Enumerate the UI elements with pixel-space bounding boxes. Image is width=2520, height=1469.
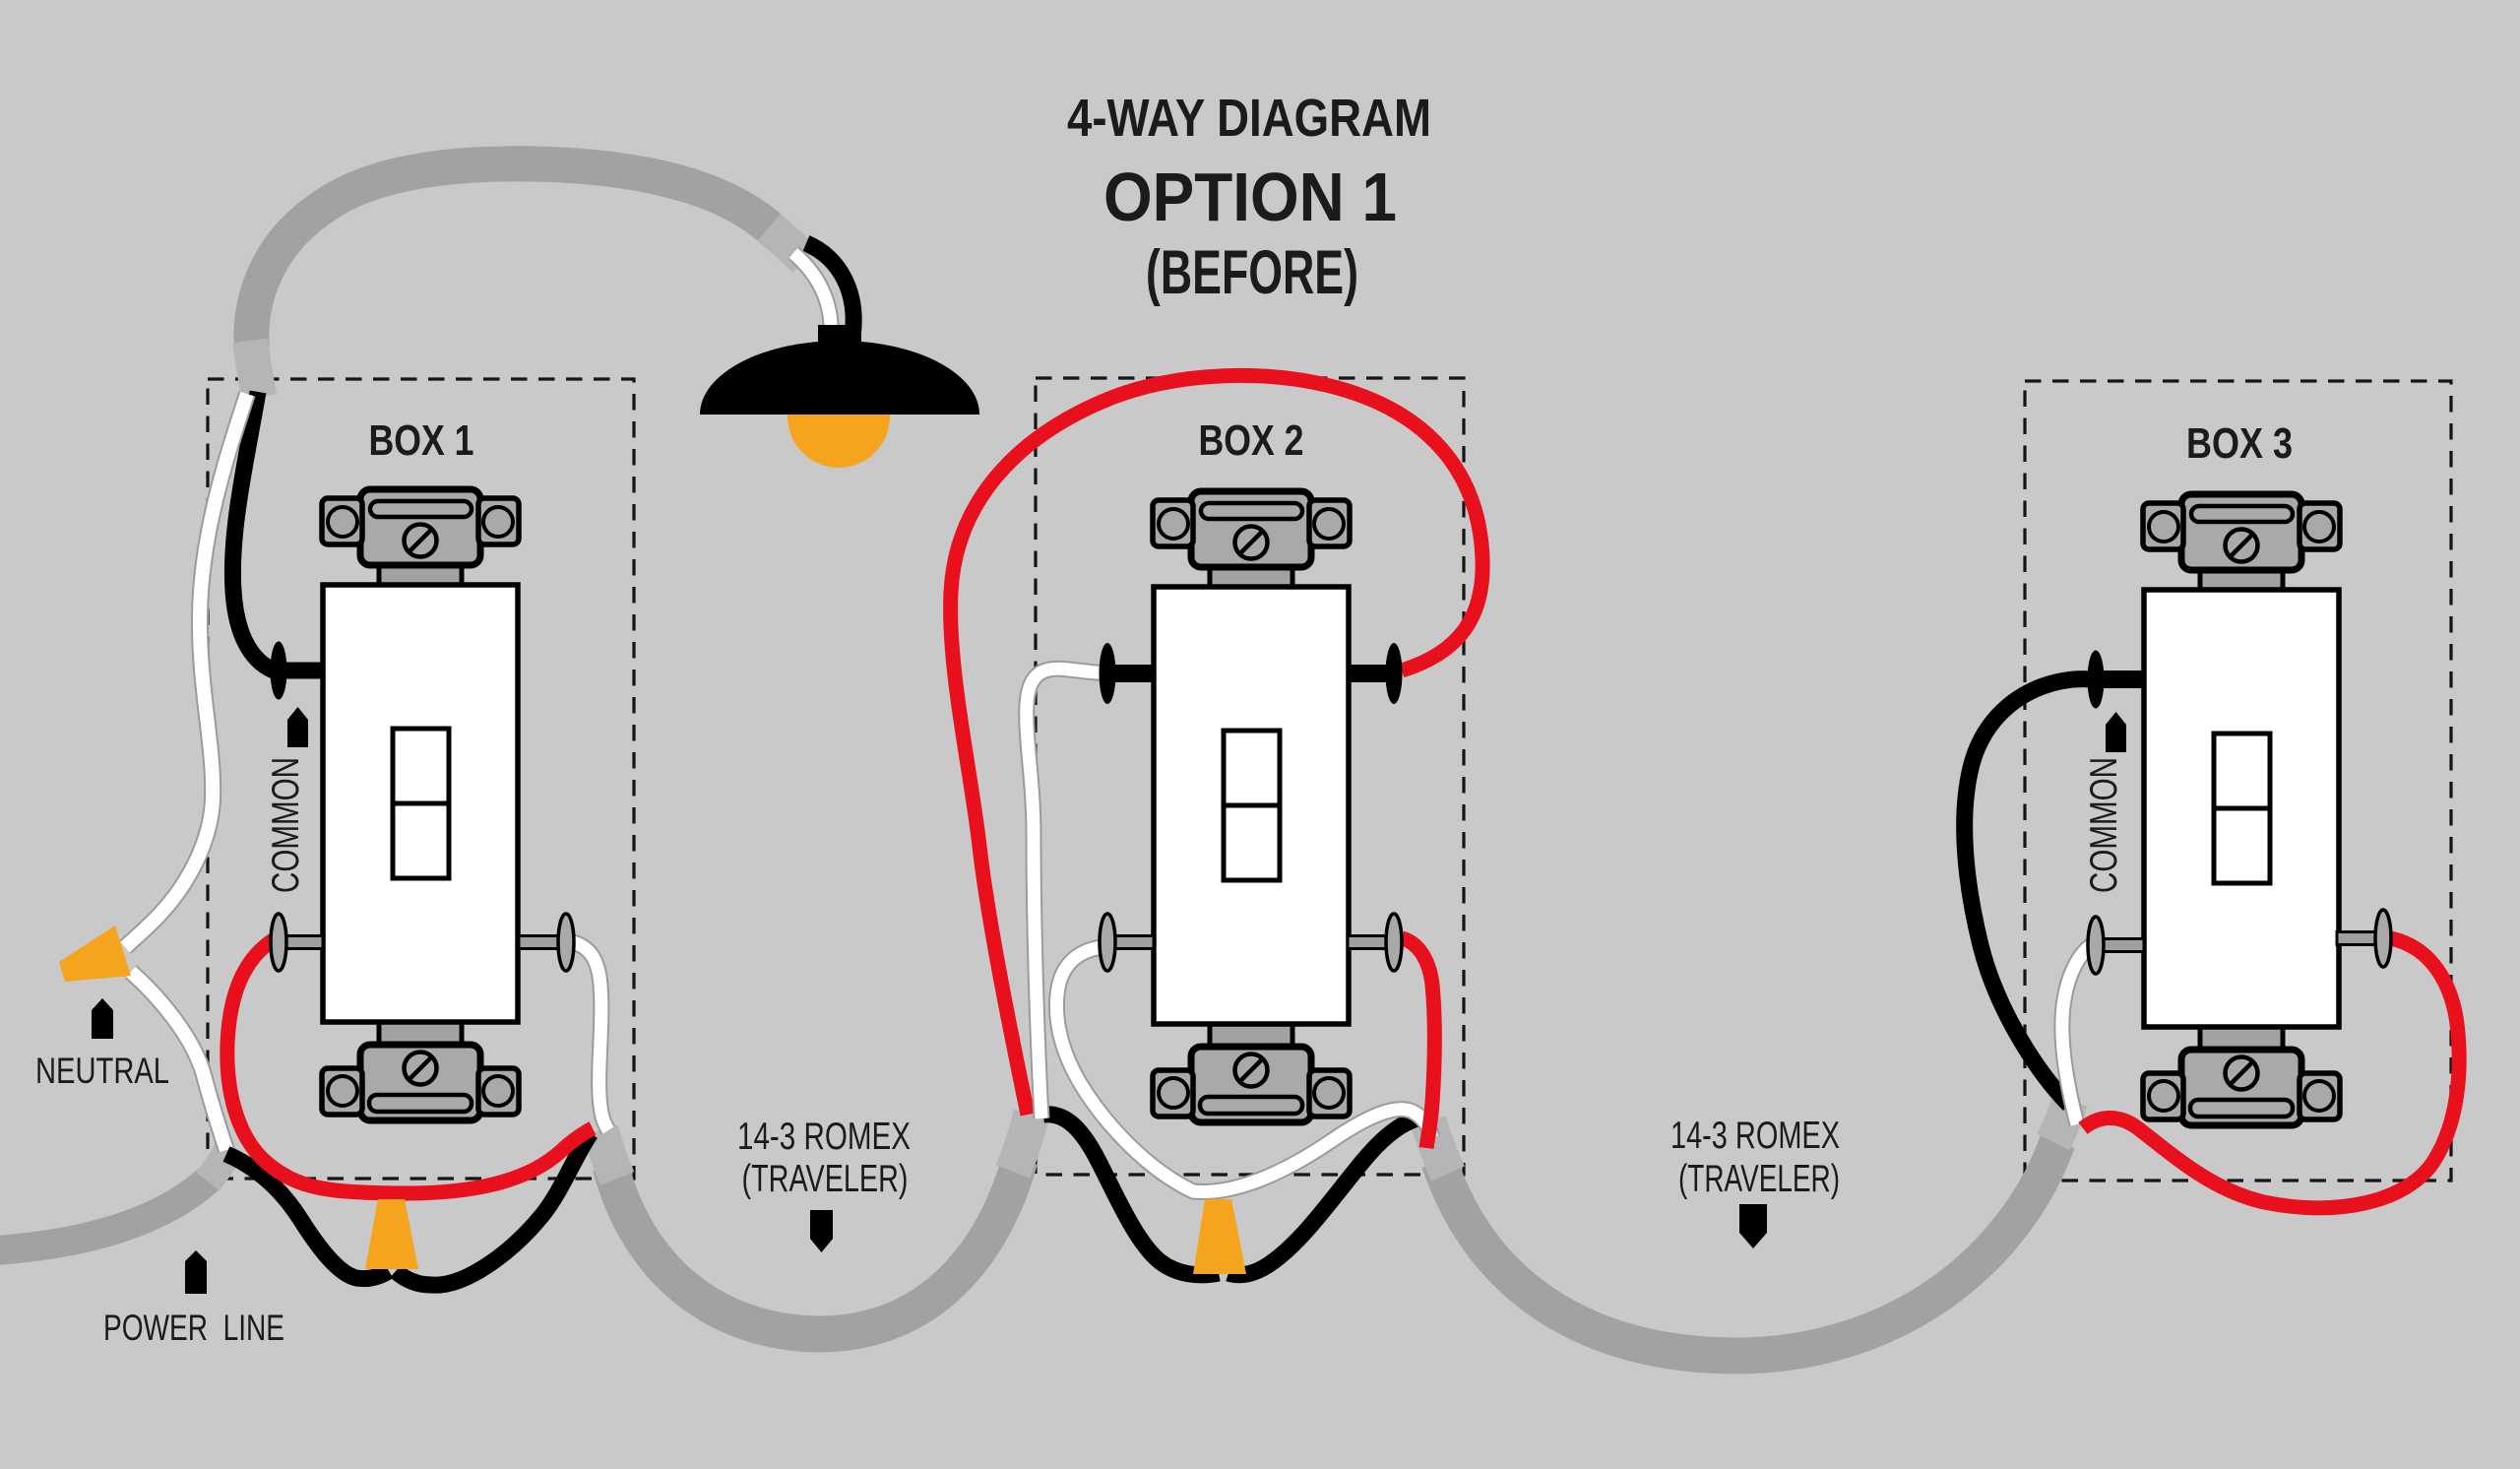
svg-text:(TRAVELER): (TRAVELER) [742,1158,909,1200]
svg-text:4-WAY DIAGRAM: 4-WAY DIAGRAM [1067,89,1431,148]
svg-text:14-3 ROMEX: 14-3 ROMEX [1670,1115,1840,1157]
svg-text:(BEFORE): (BEFORE) [1146,238,1358,307]
svg-text:(TRAVELER): (TRAVELER) [1678,1158,1840,1200]
svg-text:NEUTRAL: NEUTRAL [35,1051,169,1091]
svg-text:OPTION 1: OPTION 1 [1103,159,1397,235]
svg-text:14-3 ROMEX: 14-3 ROMEX [737,1116,911,1158]
svg-text:COMMON: COMMON [2083,757,2125,893]
svg-text:BOX 3: BOX 3 [2186,419,2293,468]
svg-text:POWER LINE: POWER LINE [103,1308,284,1348]
svg-text:BOX 2: BOX 2 [1199,416,1304,465]
svg-text:BOX 1: BOX 1 [369,416,474,465]
svg-text:COMMON: COMMON [265,757,307,893]
